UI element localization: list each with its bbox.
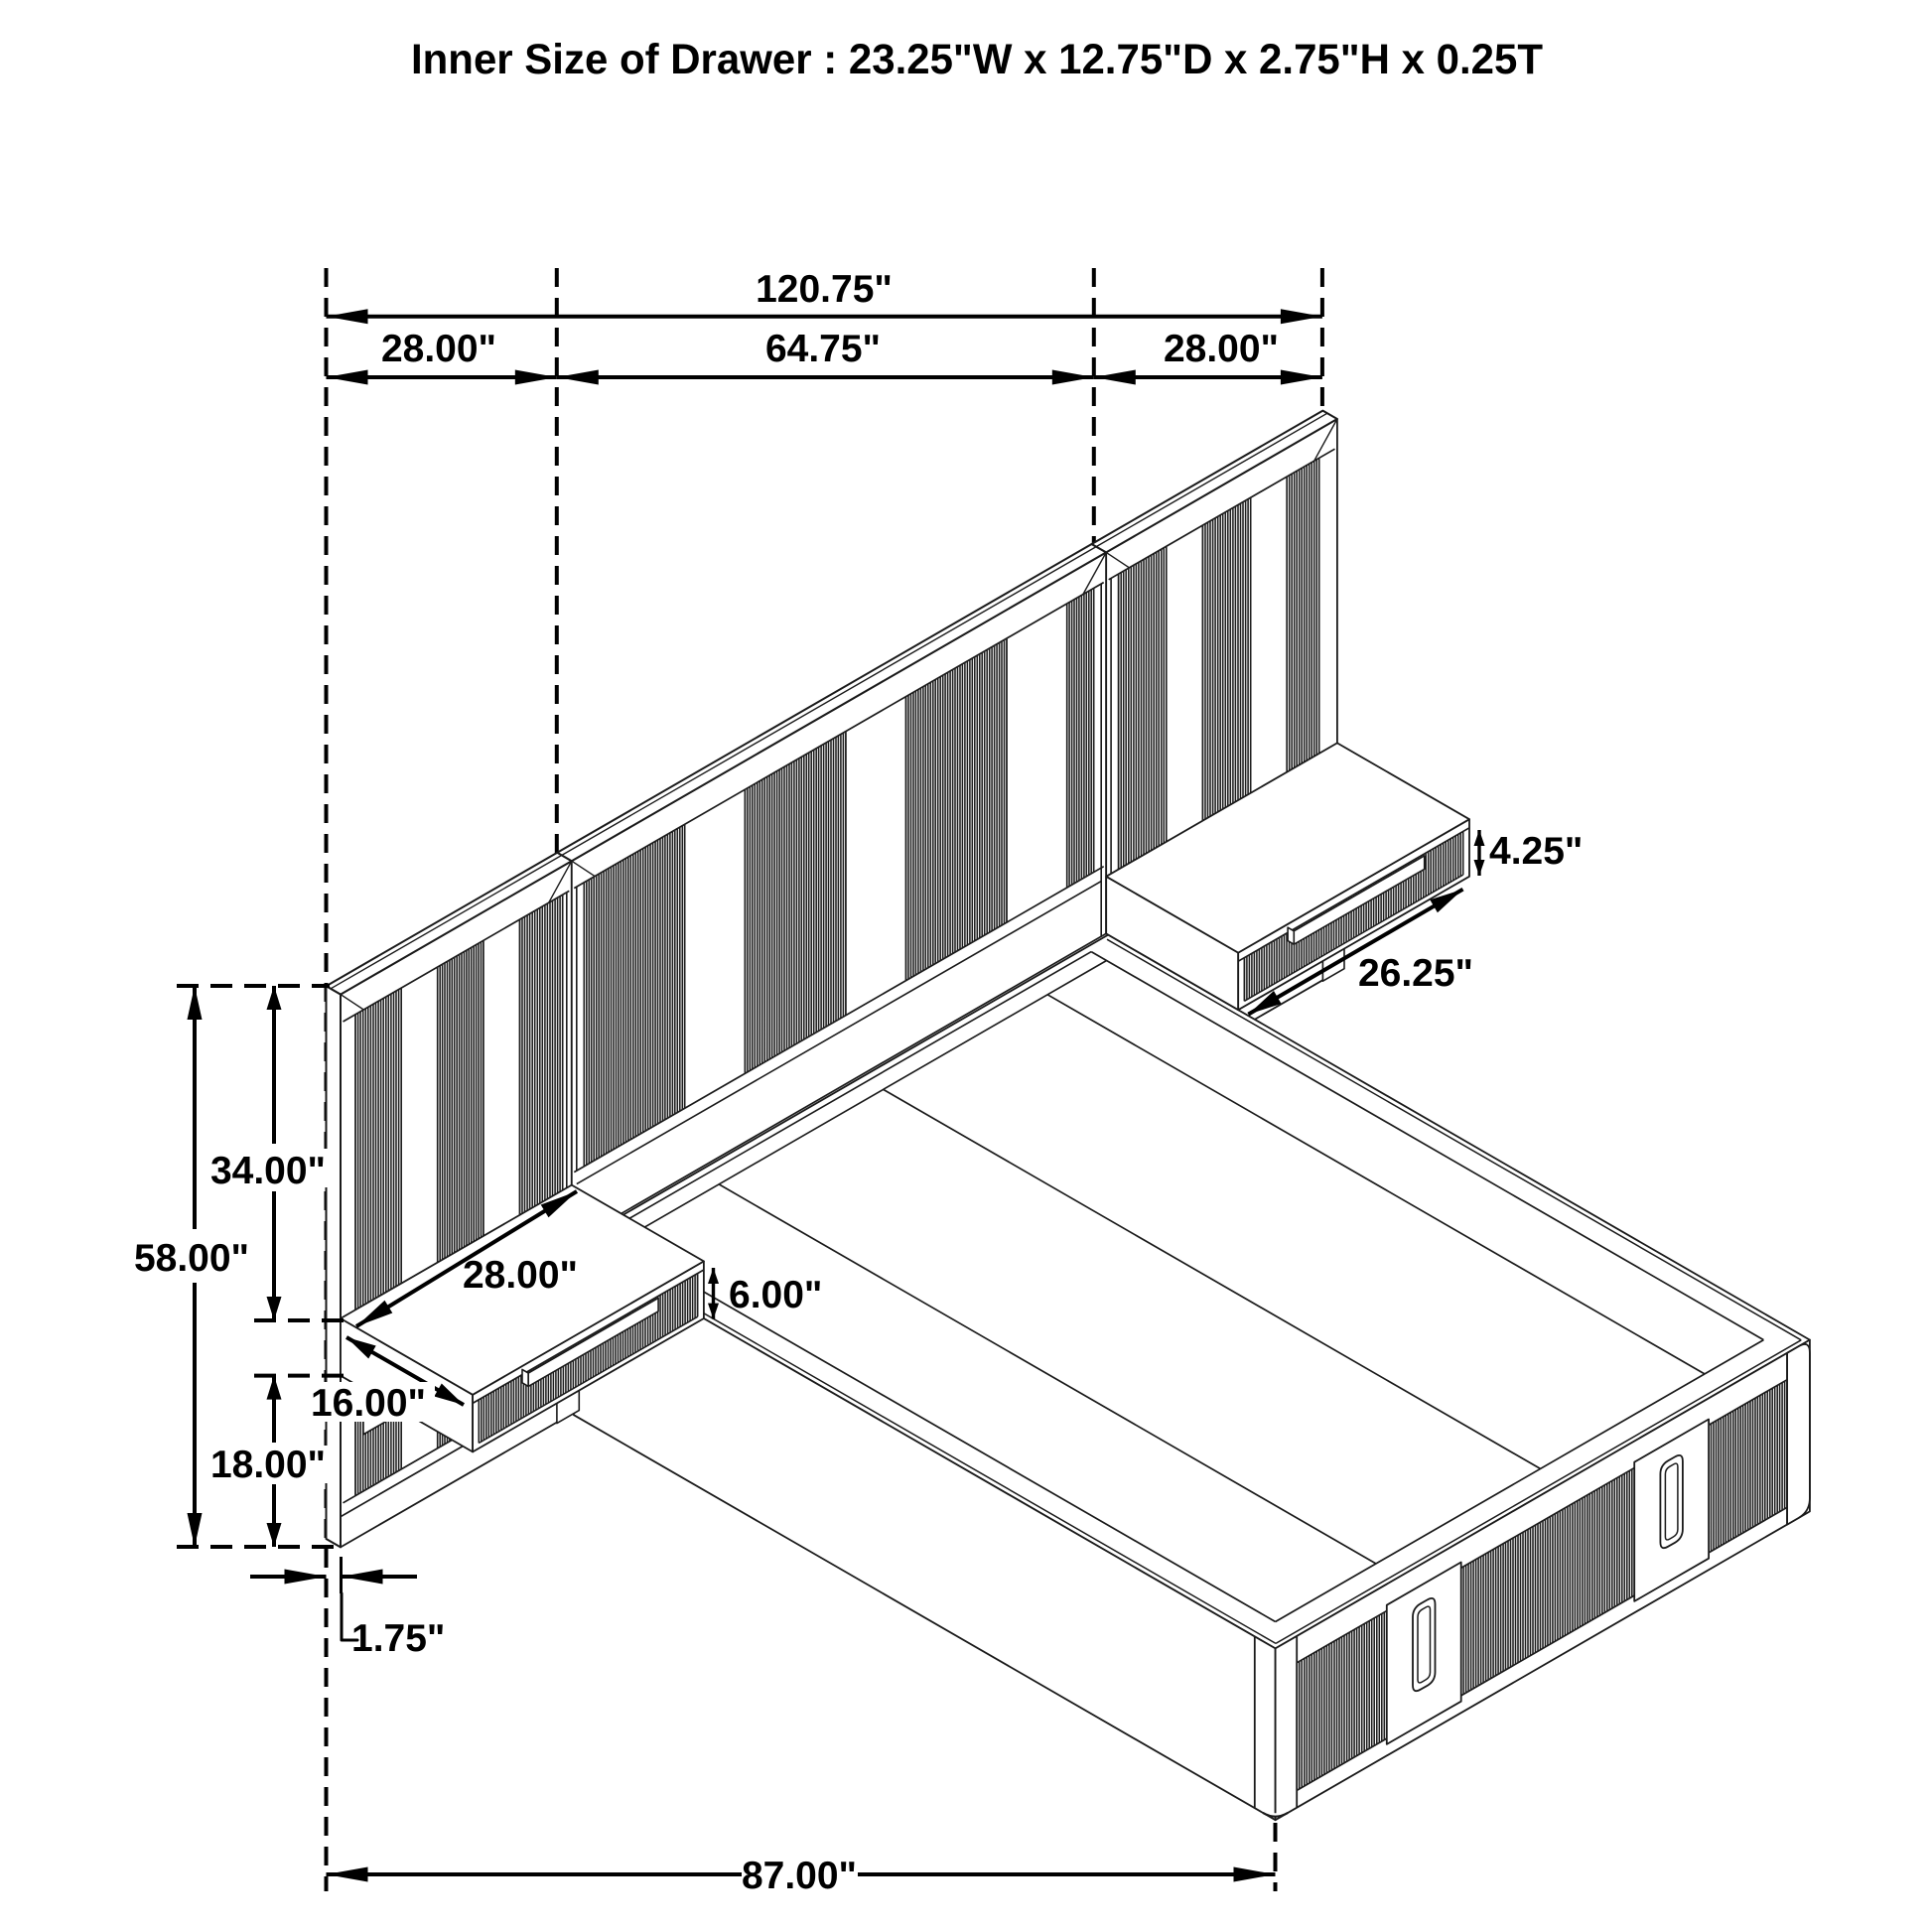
svg-text:Inner Size of Drawer : 23.25"W: Inner Size of Drawer : 23.25"W x 12.75"D…: [411, 36, 1543, 83]
svg-text:26.25": 26.25": [1358, 952, 1473, 995]
svg-text:87.00": 87.00": [742, 1855, 857, 1897]
svg-text:6.00": 6.00": [729, 1274, 822, 1316]
svg-text:18.00": 18.00": [210, 1444, 326, 1486]
svg-text:4.25": 4.25": [1489, 830, 1583, 873]
svg-text:58.00": 58.00": [134, 1237, 249, 1280]
svg-text:64.75": 64.75": [765, 328, 881, 370]
svg-text:16.00": 16.00": [311, 1382, 426, 1425]
svg-text:28.00": 28.00": [381, 328, 496, 370]
svg-text:34.00": 34.00": [210, 1150, 326, 1192]
svg-text:120.75": 120.75": [756, 268, 893, 311]
svg-text:1.75": 1.75": [351, 1617, 445, 1660]
svg-text:28.00": 28.00": [1164, 328, 1279, 370]
svg-text:28.00": 28.00": [463, 1254, 578, 1297]
